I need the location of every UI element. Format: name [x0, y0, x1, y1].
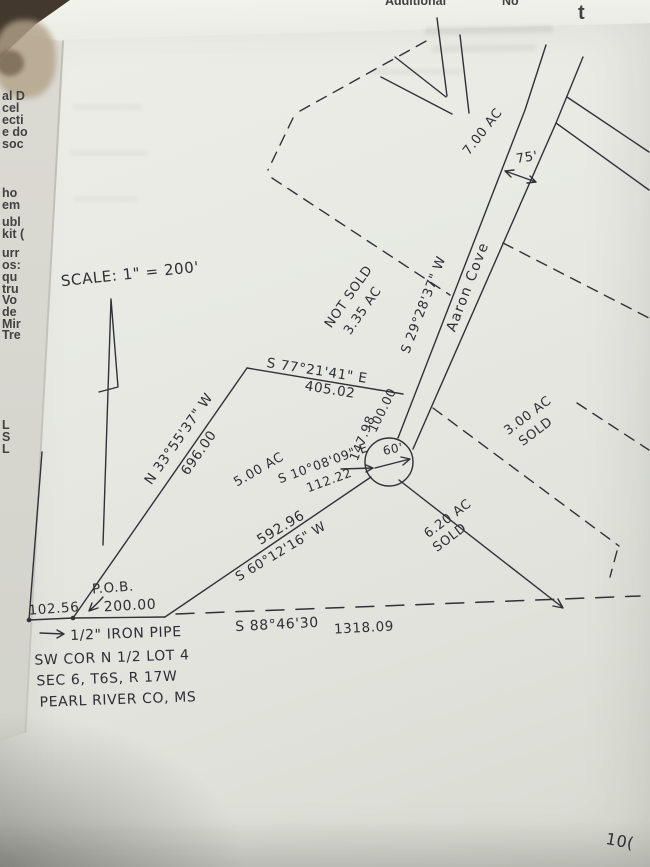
south-line-distance: 1318.09: [334, 618, 395, 637]
southeast-spur-line: [399, 480, 563, 608]
pob-point: [71, 616, 76, 621]
west-section-line: [29, 452, 42, 620]
road-north-fork-lines: [381, 18, 469, 114]
top-page-fragment-t: t: [578, 2, 585, 25]
left-page-fragment: soc: [2, 137, 24, 151]
road-left-edge: [398, 45, 546, 438]
left-page-fragment: Tre: [2, 328, 21, 342]
dashed-south-section-line: [176, 596, 640, 614]
road-branch-upper-edge: [567, 97, 649, 152]
culdesac-radius-arrow: [375, 457, 410, 468]
pob-pointer-arrow: [89, 597, 103, 611]
north-arrow: [99, 299, 118, 545]
dashed-parcel-line-3ac-south: [577, 403, 649, 450]
top-page-fragment-no: No: [502, 0, 519, 8]
photographed-survey-plat: SCALE: 1" = 200' 7.00 AC 75' Aaron Cove …: [0, 0, 650, 867]
top-page-fragment-additional: Additional: [385, 0, 446, 8]
road-width-arrow: [505, 170, 536, 183]
dashed-parcel-line-3ac-north: [503, 243, 649, 318]
road-branch-lower-edge: [556, 123, 649, 190]
plat-drawing-svg: [0, 0, 650, 867]
pob-label: P.O.B.: [92, 579, 135, 598]
left-page-fragment: L: [2, 442, 10, 456]
pob-offset-distance: 200.00: [103, 597, 156, 616]
dashed-parcel-line-top: [300, 40, 428, 111]
iron-pipe-pointer-arrow: [40, 630, 64, 638]
dashed-parcel-line-nw: [268, 118, 293, 170]
left-page-fragment: em: [2, 198, 20, 212]
southeast-boundary-line: [165, 477, 371, 617]
south-offset-line: [29, 617, 165, 620]
left-page-fragment: kit (: [2, 227, 24, 241]
